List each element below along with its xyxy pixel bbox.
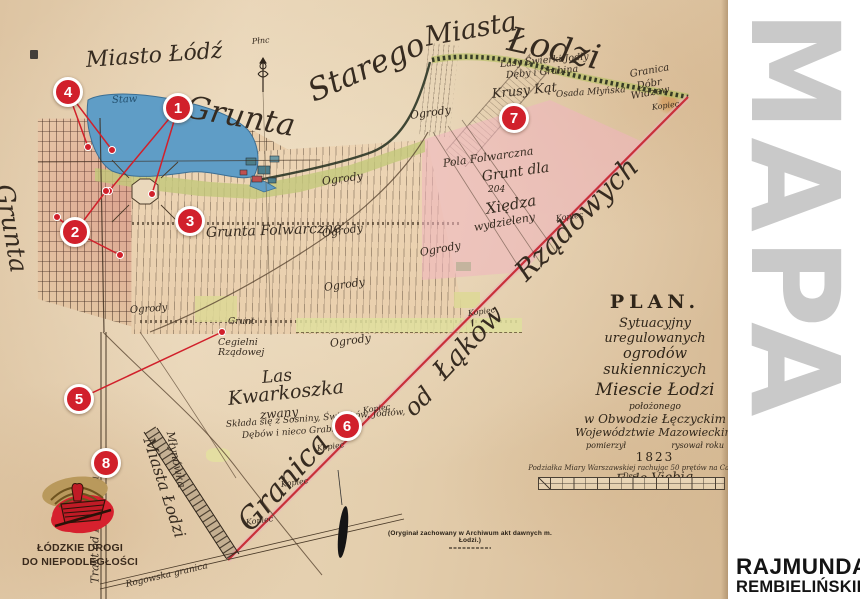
plan-line: Województwie Mazowieckim <box>572 426 728 439</box>
paper-stain <box>30 50 38 59</box>
map-marker-8[interactable]: 8 <box>91 448 121 478</box>
meadow-patch <box>206 448 230 462</box>
label-staw: Staw <box>112 95 138 106</box>
map-marker-3[interactable]: 3 <box>175 206 205 236</box>
green-plot <box>456 262 471 271</box>
label-granica-dobr-1: Granica <box>629 63 670 80</box>
plan-cartouche: PLAN. Sytuacyjny uregulowanych ogrodów s… <box>572 291 728 488</box>
label-osada: Osada Młyńska <box>556 86 626 100</box>
map-marker-2[interactable]: 2 <box>60 217 90 247</box>
map-marker-5[interactable]: 5 <box>64 384 94 414</box>
map-canvas: Miasto ŁódźGruntaStaregoMiastaŁodziGrunt… <box>0 0 728 599</box>
label-grunt-small: Grunt <box>228 318 255 327</box>
plan-line: Miescie Łodzi <box>572 380 728 400</box>
map-marker-4[interactable]: 4 <box>53 77 83 107</box>
label-num-204: 204 <box>488 186 505 195</box>
meadow-patch <box>454 292 480 308</box>
label-kwarkoszka: Kwarkoszka <box>227 378 345 409</box>
plan-line: w Obwodzie Łęczyckim <box>572 412 728 426</box>
label-grunt-dla: Grunt dla <box>481 161 550 184</box>
publisher-logo: ŁÓDZKIE DROGI DO NIEPODLEGŁOŚCI <box>16 472 144 569</box>
logo-line-1: ŁÓDZKIE DROGI <box>16 541 144 555</box>
map-marker-7[interactable]: 7 <box>499 103 529 133</box>
plan-year: 1823 <box>572 450 728 464</box>
label-miasta-arc: Miasta <box>423 8 519 51</box>
label-krusy-kat: Krusy Kąt <box>491 81 557 101</box>
plan-title: PLAN. <box>572 291 728 313</box>
credit-line-1: RAJMUNDA <box>736 555 860 579</box>
logo-line-2: DO NIEPODLEGŁOŚCI <box>16 555 144 569</box>
eagle-boat-emblem-icon <box>25 472 135 536</box>
map-author-credit: RAJMUNDA REMBIELIŃSKIEGO <box>736 555 860 596</box>
label-grunta-west: Grunta <box>0 182 32 274</box>
label-starego-arc: Starego <box>304 29 430 108</box>
label-kopiec-1: Kopiec <box>651 100 679 112</box>
source-note-microtext <box>449 547 491 549</box>
label-ogrody-5: Ogrody <box>329 332 371 349</box>
plan-line: Sytuacyjny uregulowanych <box>572 316 728 346</box>
label-miasto-lodz: Miasto Łódź <box>85 40 223 71</box>
label-cegielni-2: Rządowej <box>218 348 264 358</box>
plan-line: położonego <box>572 402 728 412</box>
source-note-text: (Oryginał zachowany w Archiwum akt dawny… <box>388 530 552 544</box>
scale-bar <box>538 477 725 490</box>
source-note: (Oryginał zachowany w Archiwum akt dawny… <box>385 530 555 549</box>
compass-north-icon <box>258 58 268 92</box>
credit-line-2: REMBIELIŃSKIEGO <box>736 579 860 596</box>
plan-line: ogrodów sukienniczych <box>572 346 728 378</box>
title-sidebar: MAPA RAJMUNDA REMBIELIŃSKIEGO <box>728 0 860 599</box>
plan-measured-label: pomierzył <box>586 441 626 450</box>
vertical-title: MAPA <box>733 10 855 422</box>
plan-drawn-label: rysował roku <box>671 441 724 450</box>
map-marker-1[interactable]: 1 <box>163 93 193 123</box>
map-marker-6[interactable]: 6 <box>332 411 362 441</box>
poster: Miasto ŁódźGruntaStaregoMiastaŁodziGrunt… <box>0 0 860 599</box>
label-wydzieleny: wydzieleny <box>473 211 536 233</box>
label-plnc: Płnc <box>252 36 270 46</box>
